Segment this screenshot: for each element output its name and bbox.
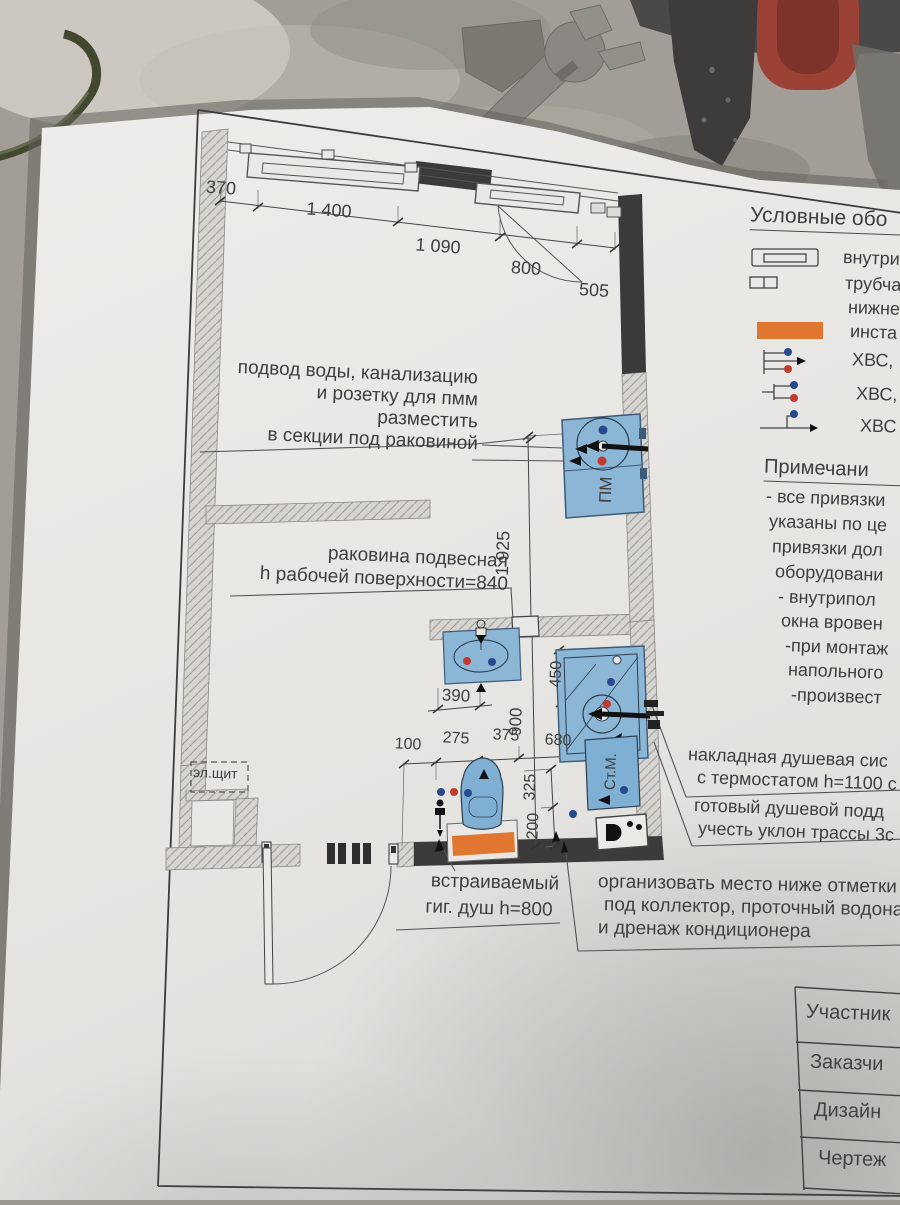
floor-outlet-dot (569, 810, 577, 818)
hyg-shower-tap (437, 800, 444, 807)
note-line: привязки дол (772, 536, 883, 561)
drawing-sheet: 370 1 400 1 090 800 505 подвод воды, кан… (0, 0, 900, 1200)
boiler-symbol (596, 814, 648, 850)
elshield-label: эл.щит (193, 764, 248, 782)
note-line: указаны по це (769, 511, 888, 536)
legend-item-label: трубча (845, 273, 900, 296)
dim-100: 100 (390, 735, 427, 755)
dim-390: 390 (430, 685, 483, 707)
dim-680: 680 (534, 731, 583, 751)
convector-icon (752, 249, 818, 266)
sink-symbol (443, 620, 521, 692)
legend-item-label: ХВС, (852, 349, 894, 371)
titleblock-row: Заказчи (810, 1051, 884, 1077)
legend-item-label: внутри (843, 247, 900, 270)
note-line: -произвест (791, 684, 882, 708)
legend-item-label: ХВС, (856, 383, 898, 405)
dim-200: 200 (524, 791, 545, 862)
washer-label: Ст.М. (601, 736, 621, 807)
dim-275: 275 (434, 729, 479, 749)
water-supply-icon (764, 350, 797, 374)
photo-of-floorplan: { "colors": { "paper": "#e9e8e5", "line"… (0, 0, 900, 1200)
legend-title: Условные обо (750, 203, 900, 236)
dishwasher-label: ПМ (595, 454, 617, 525)
hyg-shower-note-line2: гиг. душ h=800 (414, 896, 565, 922)
note-line: - все привязки (766, 486, 886, 511)
legend-icons (750, 249, 823, 428)
dim-900: 900 (505, 686, 527, 757)
dim-1925: 1 925 (491, 518, 514, 589)
dim-370: 370 (205, 177, 246, 200)
installation-frame (452, 832, 515, 856)
niche (191, 800, 234, 846)
note-line: оборудовани (775, 561, 884, 585)
toilet-symbol (435, 758, 518, 862)
titleblock-row: Участник (806, 1001, 891, 1027)
section-marks (327, 843, 371, 864)
titleblock-row: Дизайн (814, 1099, 882, 1124)
water-outlet-icon (760, 416, 810, 428)
dim-450: 450 (547, 639, 568, 710)
notes-title: Примечани (764, 455, 900, 486)
water-supply-icon (762, 384, 792, 400)
note-line: -при монтаж (785, 635, 889, 659)
dim-505: 505 (565, 278, 622, 303)
dim-800: 800 (495, 256, 556, 281)
installation-icon (757, 322, 823, 339)
note-line: напольного (788, 659, 884, 683)
plan-linework (0, 0, 900, 1200)
legend-item-label: инста (850, 321, 898, 343)
hyg-shower-note-line1: встраиваемый (420, 870, 571, 896)
legend-item-label: нижне (848, 297, 900, 319)
note-line: - внутрипол (778, 586, 876, 610)
legend-item-label: ХВС (860, 415, 897, 437)
note-line: окна вровен (781, 610, 883, 634)
dim-375: 375 (484, 726, 529, 746)
titleblock-row: Чертеж (818, 1147, 887, 1172)
